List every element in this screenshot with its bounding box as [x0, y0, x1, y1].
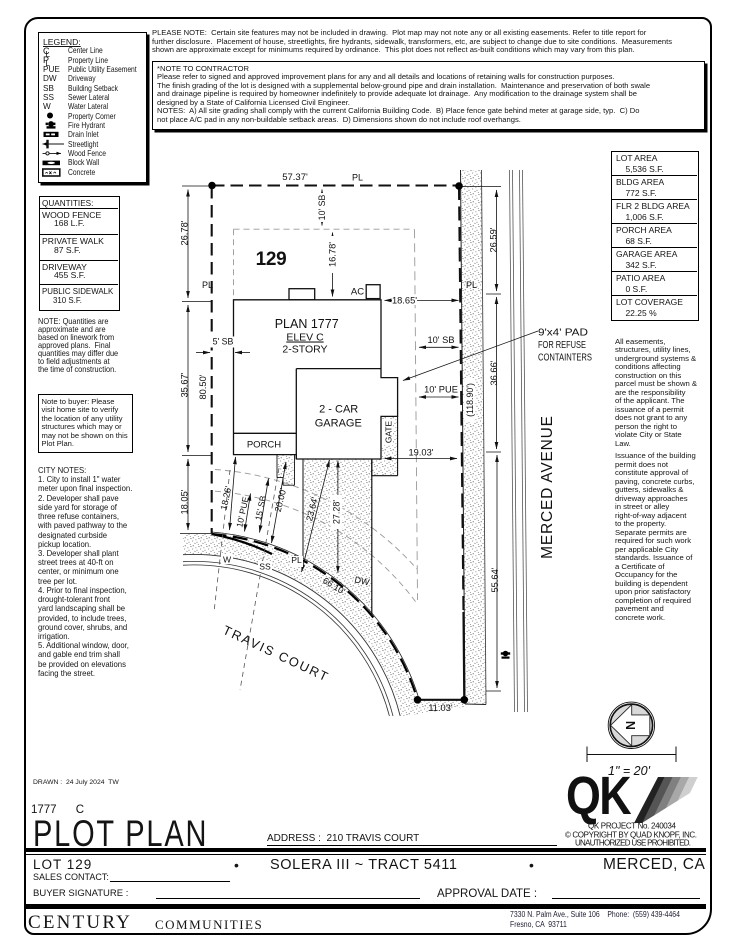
svg-text:16.78': 16.78': [328, 242, 338, 267]
svg-text:GARAGE: GARAGE: [315, 418, 362, 430]
svg-text:35.67': 35.67': [180, 372, 190, 397]
svg-text:129: 129: [256, 249, 287, 270]
svg-text:10' SB: 10' SB: [317, 195, 327, 221]
svg-text:PL: PL: [466, 280, 477, 290]
svg-text:9'x4' PAD: 9'x4' PAD: [538, 328, 588, 339]
svg-text:80.50': 80.50': [198, 374, 208, 399]
svg-text:20.00': 20.00': [273, 487, 289, 513]
svg-text:55.64': 55.64': [490, 567, 500, 592]
svg-text:57.37': 57.37': [282, 172, 308, 183]
svg-text:26.59': 26.59': [489, 227, 499, 252]
svg-text:N: N: [624, 721, 638, 730]
svg-text:UNAUTHORIZED USE PROHIBITED.: UNAUTHORIZED USE PROHIBITED.: [575, 839, 691, 848]
svg-text:PLAN 1777: PLAN 1777: [275, 317, 339, 331]
svg-text:TRAVIS COURT: TRAVIS COURT: [221, 622, 332, 684]
svg-text:26.78': 26.78': [180, 220, 190, 245]
svg-text:MERCED AVENUE: MERCED AVENUE: [539, 415, 556, 559]
svg-text:QK: QK: [566, 765, 632, 826]
svg-text:2-STORY: 2-STORY: [282, 344, 327, 356]
svg-text:36.66': 36.66': [489, 360, 499, 385]
svg-text:W: W: [223, 555, 232, 565]
svg-text:PL: PL: [202, 280, 213, 290]
svg-text:10' SB: 10' SB: [427, 335, 454, 345]
svg-text:PL: PL: [352, 173, 363, 183]
svg-text:AC: AC: [351, 287, 364, 298]
svg-text:27.28': 27.28': [332, 500, 342, 525]
svg-text:15' SB: 15' SB: [253, 494, 268, 521]
svg-text:18.65': 18.65': [392, 296, 417, 306]
svg-text:10' PUE: 10' PUE: [234, 495, 250, 528]
svg-text:FOR REFUSE: FOR REFUSE: [538, 340, 586, 351]
svg-text:CONTAINTERS: CONTAINTERS: [538, 353, 592, 364]
svg-text:10' PUE: 10' PUE: [424, 385, 458, 395]
svg-text:L: L: [46, 59, 51, 68]
svg-text:PL: PL: [291, 555, 302, 565]
svg-text:(118.90'): (118.90'): [465, 383, 475, 417]
svg-text:11.03': 11.03': [428, 703, 453, 713]
svg-text:PORCH: PORCH: [247, 440, 281, 451]
svg-text:18.05': 18.05': [180, 489, 190, 514]
svg-text:19.03': 19.03': [408, 448, 433, 458]
svg-text:SS: SS: [259, 562, 271, 572]
svg-text:ELEV C: ELEV C: [286, 332, 324, 344]
svg-text:5' SB: 5' SB: [213, 337, 234, 347]
svg-text:GATE: GATE: [384, 421, 394, 444]
svg-text:2 - CAR: 2 - CAR: [319, 404, 358, 416]
